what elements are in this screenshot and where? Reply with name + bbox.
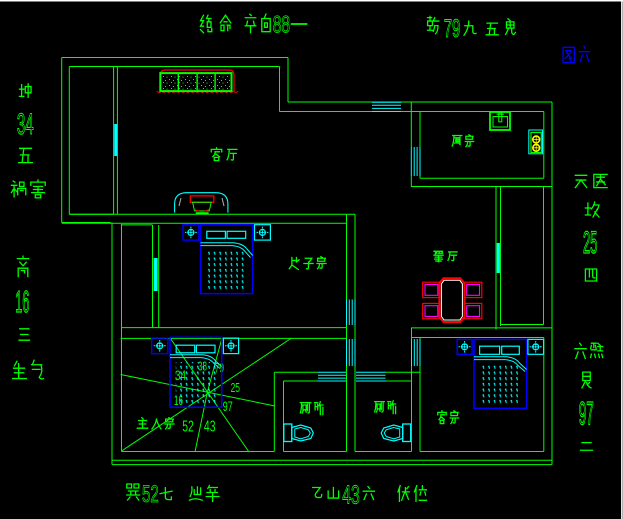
svg-text:34: 34 bbox=[17, 109, 34, 142]
svg-text:25: 25 bbox=[583, 225, 597, 260]
svg-text:52: 52 bbox=[142, 482, 159, 508]
svg-text:16: 16 bbox=[15, 285, 29, 319]
svg-text:25: 25 bbox=[231, 381, 240, 395]
svg-text:88: 88 bbox=[273, 13, 290, 39]
svg-text:43: 43 bbox=[204, 417, 216, 435]
svg-text:97: 97 bbox=[579, 396, 594, 433]
svg-text:97: 97 bbox=[223, 399, 233, 414]
svg-text:52: 52 bbox=[182, 417, 194, 435]
svg-text:43: 43 bbox=[342, 480, 359, 509]
svg-text:79: 79 bbox=[444, 15, 461, 43]
